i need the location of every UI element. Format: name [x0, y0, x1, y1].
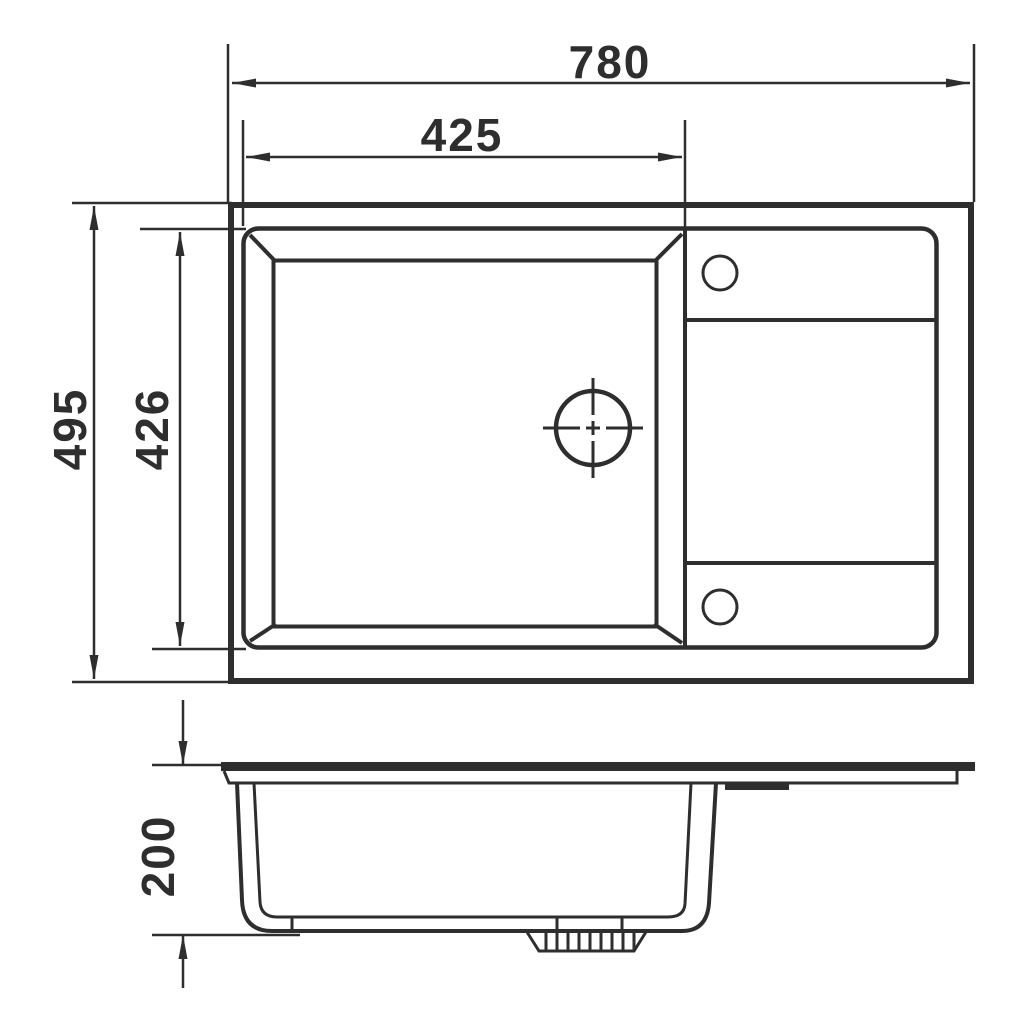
sink-outer-edge [231, 205, 971, 681]
bowl-inner-wall [254, 783, 691, 917]
arrowhead-left [232, 79, 256, 88]
arrowhead-top [176, 232, 185, 256]
arrowhead-bottom [90, 655, 99, 679]
waste-fitting [527, 932, 646, 951]
drainer-lip [725, 782, 789, 790]
dimension-label-426: 426 [126, 388, 178, 471]
arrowhead-down [179, 741, 188, 765]
dimension-bowl-height: 200 [132, 700, 300, 988]
sink-drawing: 780 425 495 426 200 [0, 0, 1024, 1024]
arrowhead-left [246, 153, 270, 162]
dimension-overall-width: 780 [228, 36, 974, 202]
dimension-label-200: 200 [132, 815, 184, 898]
arrowhead-right [658, 153, 682, 162]
rim-profile [224, 771, 957, 783]
dimension-label-780: 780 [569, 36, 652, 88]
dimension-label-425: 425 [421, 109, 504, 161]
side-view [221, 762, 975, 951]
technical-drawing-canvas: 780 425 495 426 200 [0, 0, 1024, 1024]
arrowhead-right [946, 79, 970, 88]
arrowhead-up [179, 935, 188, 959]
bowl-outer-wall [237, 783, 716, 931]
countertop-edge [221, 762, 975, 771]
top-view [231, 205, 971, 681]
dimension-label-495: 495 [44, 388, 96, 471]
arrowhead-bottom [176, 622, 185, 646]
arrowhead-top [90, 206, 99, 230]
